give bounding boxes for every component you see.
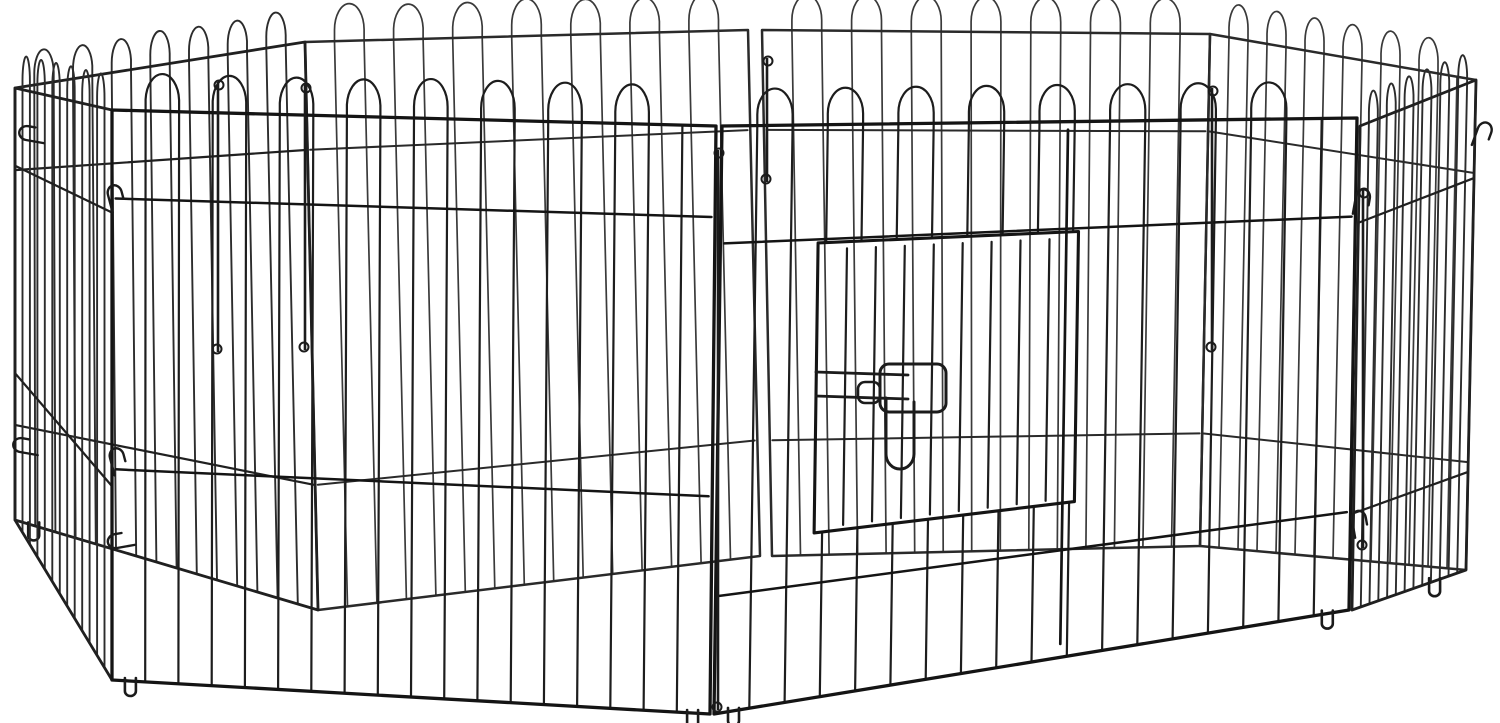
latch-handle xyxy=(886,398,914,469)
door-hinge-rod xyxy=(1060,130,1068,644)
panel-wires xyxy=(792,30,1180,555)
panel-left-side xyxy=(15,57,112,680)
panel-back-left xyxy=(305,0,760,610)
latch-prongs xyxy=(816,372,908,399)
panel-rails xyxy=(767,130,1206,440)
door-latch xyxy=(816,364,946,469)
product-photo xyxy=(0,0,1500,723)
panel-loop-tops xyxy=(1229,5,1438,73)
panel-rails xyxy=(310,130,755,485)
latch-clip xyxy=(858,382,880,403)
connector-hook xyxy=(1351,510,1369,538)
panel-back-right xyxy=(1200,5,1476,570)
panel-front-left xyxy=(112,74,716,723)
panel-wires xyxy=(749,118,1321,708)
panel-frame xyxy=(714,118,1357,714)
connector-pins xyxy=(213,57,1369,712)
panel-loop-tops xyxy=(792,0,1180,34)
playpen-illustration xyxy=(0,0,1500,723)
